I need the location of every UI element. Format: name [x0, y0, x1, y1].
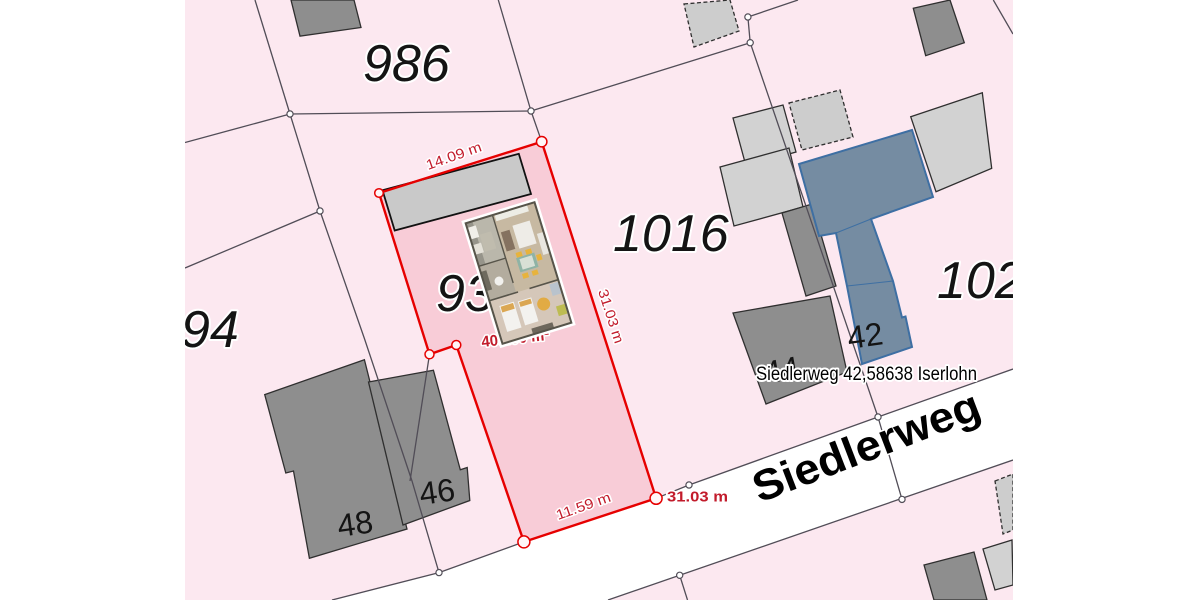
svg-text:31.03 m: 31.03 m	[667, 490, 728, 506]
svg-text:Siedlerweg 42,58638 Iserlohn: Siedlerweg 42,58638 Iserlohn	[756, 363, 977, 385]
svg-text:42: 42	[845, 315, 885, 356]
svg-text:46: 46	[417, 471, 457, 512]
svg-text:94: 94	[181, 301, 239, 359]
svg-text:1016: 1016	[613, 205, 729, 263]
svg-text:48: 48	[335, 503, 375, 544]
svg-text:986: 986	[363, 35, 450, 93]
